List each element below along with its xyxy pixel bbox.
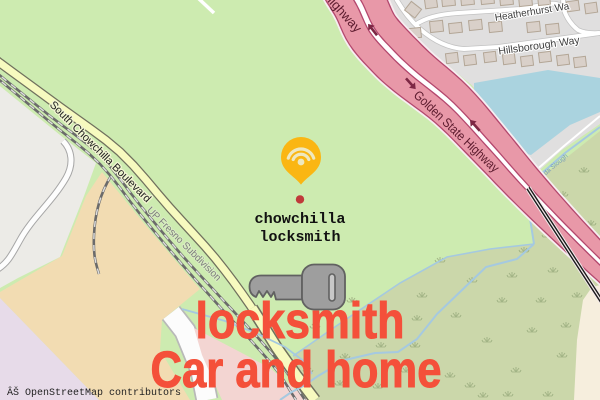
svg-text:ÂŠ OpenStreetMap contributors: ÂŠ OpenStreetMap contributors	[7, 385, 181, 399]
svg-text:locksmith: locksmith	[260, 229, 341, 246]
svg-text:chowchilla: chowchilla	[255, 211, 346, 228]
svg-text:Car and home: Car and home	[151, 341, 442, 398]
